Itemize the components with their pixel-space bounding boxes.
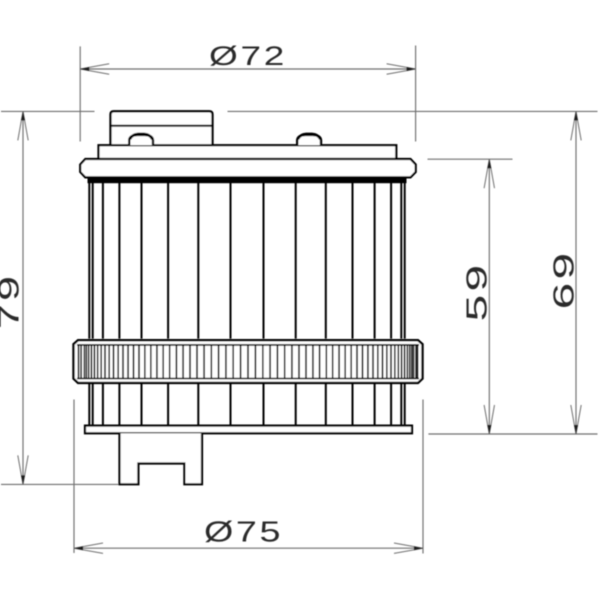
svg-text:Ø72: Ø72 [209,41,287,71]
svg-text:79: 79 [0,273,25,329]
svg-text:Ø75: Ø75 [204,516,283,548]
svg-text:69: 69 [548,250,580,310]
svg-text:59: 59 [461,262,493,322]
